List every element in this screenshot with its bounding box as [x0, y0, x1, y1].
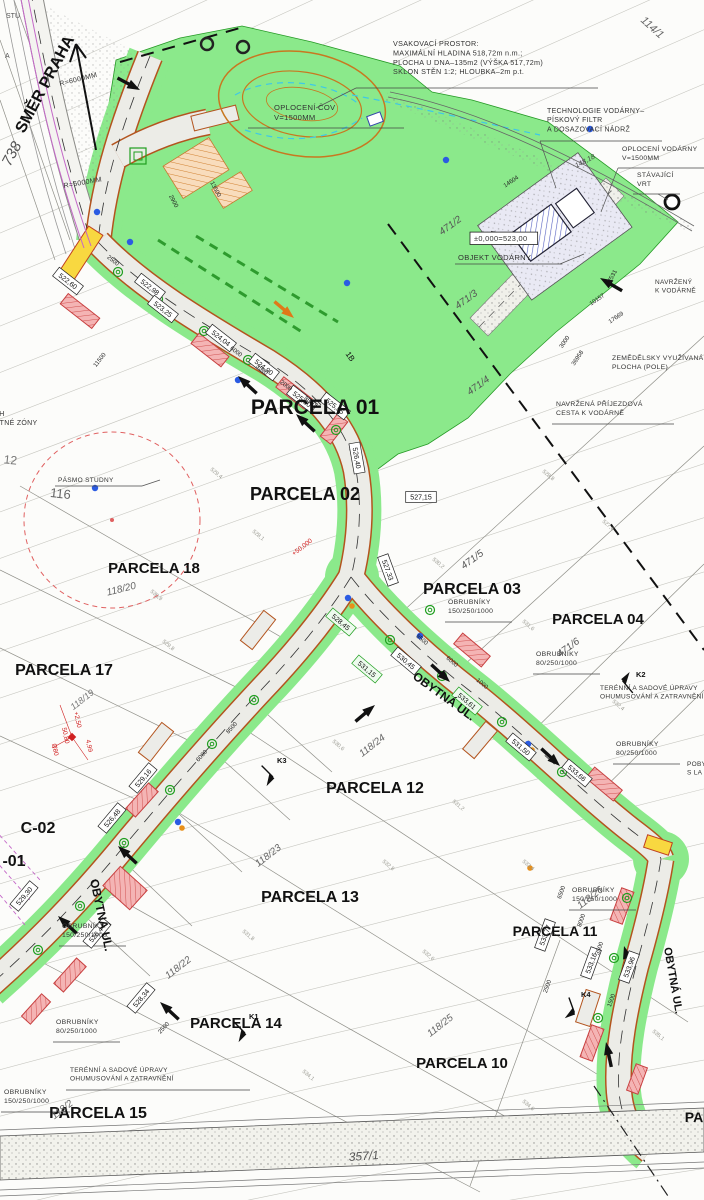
red-note: 4,99: [84, 739, 94, 753]
annotation-line: K VODÁRNĚ: [655, 286, 696, 295]
spot-height: 529,8: [161, 639, 175, 652]
tree-icon: [594, 1014, 603, 1023]
map-label: 357/1: [348, 1148, 379, 1164]
site-plan-page: 522,60522,98523,25524,04524,90525,50525,…: [0, 0, 704, 1200]
spot-height: 532,6: [421, 949, 435, 962]
spot-height: 535,1: [651, 1029, 665, 1042]
annotation-line: TERÉNNÍ A SADOVÉ ÚPRAVY: [600, 683, 698, 692]
spot-height: 528,1: [251, 529, 265, 542]
annotation-line: 80/250/1000: [536, 660, 577, 667]
annotation-line: OPLOCENÍ VODÁRNY: [622, 144, 698, 153]
annotation-block: TERÉNNÍ A SADOVÉ ÚPRAVYOHUMUSOVÁNÍ A ZAT…: [600, 683, 704, 701]
annotation-line: V=1500MM: [622, 155, 659, 162]
spot-height: 528,8: [541, 469, 555, 482]
annotation-line: OBRUBNÍKY: [56, 1017, 99, 1026]
spot-height: 532,8: [381, 859, 395, 872]
parcel-label: PARCELA 02: [250, 484, 360, 504]
elevation-value: 527,15: [410, 495, 432, 502]
elevation-label: 527,15: [406, 492, 437, 503]
utility-dot-blue: [175, 819, 181, 825]
spot-height: 531,6: [521, 619, 535, 632]
annotation-block: STÁVAJÍCÍVRT: [637, 170, 674, 188]
annotation-line: NAVRŽENÁ PŘÍJEZDOVÁ: [556, 399, 643, 408]
section-mark-label: K2: [636, 670, 646, 679]
map-label: PA: [685, 1109, 703, 1125]
spot-height: 530,2: [431, 557, 445, 570]
utility-dot-blue: [127, 239, 133, 245]
annotation-line: 80/250/1000: [56, 1028, 97, 1035]
spot-height: 534,6: [521, 1099, 535, 1112]
annotation-line: PLOCHA U DNA–135m2 (VÝŠKA 517,72m): [393, 58, 543, 67]
annotation-line: ZEMĚDĚLSKY VYUŽÍVANÁ: [612, 353, 704, 362]
annotation-line: A DOSAZOVACÍ NÁDRŽ: [547, 124, 630, 133]
map-label: 471/5: [459, 548, 486, 572]
street-label: OBYTNÁ UL.: [661, 946, 685, 1014]
annotation-line: OBRUBNÍKY: [448, 597, 491, 606]
annotation-line: SKLON STĚN 1:2; HLOUBKA–2m p.t.: [393, 67, 524, 76]
annotation-line: OBRUBNÍKY: [4, 1087, 47, 1096]
spot-height: 531,2: [451, 799, 465, 812]
annotation-line: PLOCHA (POLE): [612, 364, 668, 371]
annotation-block: PÁSMO STUDNY: [58, 475, 114, 484]
parcel-label: PARCELA 13: [261, 889, 359, 906]
annotation-line: 150/250/1000: [448, 608, 493, 615]
annotation-line: 80/250/1000: [616, 750, 657, 757]
spot-height: 534,1: [301, 1069, 315, 1082]
annotation-block: ZEMĚDĚLSKY VYUŽÍVANÁPLOCHA (POLE): [612, 353, 704, 371]
elevation-label: 529,30: [10, 881, 38, 912]
spot-height: 530,6: [331, 739, 345, 752]
annotation-line: OBRUBNÍKY: [616, 739, 659, 748]
parking-bay: [54, 958, 86, 992]
spot-height: 531,8: [241, 929, 255, 942]
annotation-line: VSAKOVACÍ PROSTOR:: [393, 39, 479, 48]
red-note: +2,50: [72, 711, 82, 729]
traffic-arrow-icon: [157, 999, 182, 1023]
annotation-block: NAVRŽENÁ PŘÍJEZDOVÁCESTA K VODÁRNĚ: [556, 399, 643, 417]
map-label: 116: [49, 485, 71, 502]
map-label: 12: [3, 452, 18, 467]
annotation-line: OBJEKT VODÁRNY: [458, 253, 531, 262]
parking-bay: [60, 294, 100, 329]
utility-dot-blue: [94, 209, 100, 215]
annotation-line: OPLOCENÍ ČOV: [274, 103, 336, 112]
parcel-label: PARCELA 04: [552, 611, 644, 628]
annotation-line: OBYTNÉ ZÓNY: [0, 418, 38, 427]
annotation-block: TERÉNNÍ A SADOVÉ ÚPRAVYOHUMUSOVÁNÍ A ZAT…: [70, 1065, 174, 1083]
section-mark-label: K3: [277, 756, 287, 765]
annotation-block: OBRUBNÍKY150/250/1000: [448, 597, 493, 615]
annotation-block: ±0,000=523,00: [470, 232, 538, 244]
tree-icon: [426, 606, 435, 615]
annotation-line: PÍSKOVÝ FILTR: [547, 115, 603, 124]
annotation-line: TECHNOLOGIE VODÁRNY–: [547, 106, 644, 115]
dimension-label: 2500: [158, 1021, 172, 1035]
map-label: 118/25: [425, 1012, 456, 1039]
annotation-line: PRÁH: [0, 409, 5, 418]
annotation-line: CESTA K VODÁRNĚ: [556, 408, 624, 417]
parcel-label: PARCELA 17: [15, 662, 113, 679]
parcel-label: PARCELA 10: [416, 1055, 508, 1072]
annotation-line: PÁSMO STUDNY: [58, 475, 114, 484]
parcel-label: PARCELA 14: [190, 1015, 282, 1032]
map-label: -01: [2, 853, 25, 870]
annotation-line: NAVRŽENÝ: [655, 277, 693, 286]
annotation-line: V=1500MM: [274, 113, 315, 122]
annotation-line: OHUMUSOVÁNÍ A ZATRAVNĚNÍ: [600, 692, 704, 701]
parcel-label: PARCELA 18: [108, 560, 200, 577]
annotation-block: POBYS LA: [687, 761, 704, 777]
map-label: 114/1: [638, 14, 666, 41]
section-mark: K3: [254, 756, 287, 786]
annotation-block: OPLOCENÍ VODÁRNYV=1500MM: [622, 144, 698, 162]
red-note: +50,000: [291, 537, 314, 557]
annotation-block: NAVRŽENÝK VODÁRNĚ: [655, 277, 696, 295]
annotation-block: OBJEKT VODÁRNY: [458, 253, 531, 262]
annotation-block: VSAKOVACÍ PROSTOR:MAXIMÁLNÍ HLADINA 518,…: [393, 39, 543, 76]
utility-dot-orange: [349, 603, 355, 609]
annotation-line: STÁVAJÍCÍ: [637, 170, 674, 179]
parcel-label: PARCELA 12: [326, 780, 424, 797]
annotation-line: TERÉNNÍ A SADOVÉ ÚPRAVY: [70, 1065, 168, 1074]
dimension-label: 6500: [557, 885, 567, 900]
annotation-line: MAXIMÁLNÍ HLADINA 518,72m n.m.;: [393, 48, 523, 57]
map-label: 118/20: [106, 581, 138, 599]
dimension-label: 11500: [93, 352, 108, 369]
red-note: 50,80: [60, 727, 70, 745]
parking-bay: [22, 994, 51, 1024]
parcel-label: PARCELA 11: [513, 923, 598, 939]
annotation-line: OHUMUSOVÁNÍ A ZATRAVNĚNÍ: [70, 1074, 174, 1083]
utility-dot-blue: [344, 280, 350, 286]
parcel-label: PARCELA 03: [423, 581, 521, 598]
spot-height: 527,6: [601, 519, 615, 532]
annotation-line: POBY: [687, 761, 704, 768]
map-label: 118/24: [357, 732, 388, 759]
map-label: STU: [6, 13, 20, 20]
annotation-line: S LA: [687, 770, 703, 777]
utility-dot-blue: [345, 595, 351, 601]
spot-height: 530,9: [149, 589, 163, 602]
site-plan-drawing: 522,60522,98523,25524,04524,90525,50525,…: [0, 0, 704, 1200]
map-label: 118/19: [68, 687, 95, 711]
utility-dot-blue: [443, 157, 449, 163]
dimension-label: 3500: [595, 941, 605, 956]
map-label: C-02: [21, 820, 56, 837]
map-label: A: [5, 53, 10, 60]
annotation-line: ±0,000=523,00: [474, 234, 527, 243]
annotation-block: OBRUBNÍKY150/250/1000: [4, 1087, 49, 1105]
section-mark-label: K4: [581, 990, 591, 999]
parcel-label: PARCELA 01: [251, 396, 380, 419]
utility-dot-orange: [179, 825, 185, 831]
annotation-line: VRT: [637, 181, 651, 188]
annotation-line: 150/250/1000: [4, 1098, 49, 1105]
traffic-arrow-icon: [352, 701, 378, 725]
dimension-label: 36958: [571, 349, 586, 367]
borehole-symbol: [665, 195, 679, 209]
annotation-block: TECHNOLOGIE VODÁRNY–PÍSKOVÝ FILTRA DOSAZ…: [547, 106, 644, 133]
dimension-label: 3000: [559, 335, 572, 350]
map-label: 118/22: [163, 954, 194, 981]
red-note: Ø80: [50, 743, 59, 757]
annotation-block: OBRUBNÍKY80/250/1000: [56, 1017, 99, 1035]
dimension-label: 2500: [543, 979, 553, 994]
section-marks: K3K2K1K4: [226, 670, 646, 1042]
dimension-label: 17669: [608, 311, 626, 326]
spot-height: 533,4: [521, 859, 535, 872]
